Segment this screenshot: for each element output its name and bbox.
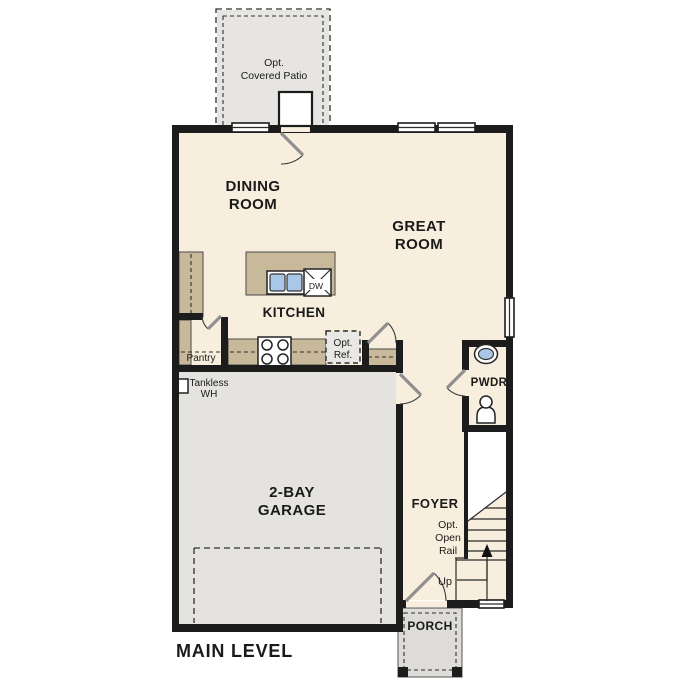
great-room-label-1: GREAT	[392, 218, 445, 235]
pwdr-label: PWDR	[471, 377, 508, 389]
foyer-label: FOYER	[412, 496, 459, 511]
window-dining	[232, 123, 269, 132]
cooktop	[258, 337, 291, 367]
wall-pantry-right	[221, 317, 228, 365]
main-level-title: MAIN LEVEL	[176, 641, 293, 661]
toilet	[477, 396, 495, 423]
patio-door-panel	[279, 92, 312, 126]
pantry-label: Pantry	[187, 353, 216, 364]
patio-label-2: Covered Patio	[241, 70, 308, 82]
wall-foyer-stairs	[464, 432, 468, 559]
kitchen-label: KITCHEN	[263, 305, 326, 320]
open-rail-label-3: Rail	[439, 545, 457, 557]
window-stairs-front	[479, 600, 504, 608]
floor-plan-drawing: Opt. Ref. DW	[0, 0, 687, 687]
burner	[262, 340, 272, 350]
powder-sink	[475, 345, 498, 364]
wall-pantry-top	[172, 313, 203, 320]
tankless-label-1: Tankless	[190, 378, 229, 389]
sink-basin-left	[270, 274, 285, 291]
dining-room-label-2: ROOM	[229, 196, 277, 213]
window-great-2	[438, 123, 475, 132]
dishwasher: DW	[304, 269, 331, 296]
dishwasher-label: DW	[309, 281, 323, 291]
island-sink	[267, 271, 305, 294]
dining-room-label-1: DINING	[226, 178, 281, 195]
wall-pwdr-bottom	[462, 425, 513, 432]
wall-closet-left	[362, 340, 369, 372]
patio-label-1: Opt.	[264, 57, 284, 69]
porch-post-right	[452, 667, 462, 677]
window-great-right	[505, 298, 514, 337]
burner	[278, 354, 288, 364]
great-room-label-2: ROOM	[395, 236, 443, 253]
wall-left	[172, 125, 179, 632]
opt-ref-label-1: Opt.	[334, 338, 353, 349]
wall-pwdr-left-upper	[462, 340, 469, 370]
open-rail-label-1: Opt.	[438, 519, 458, 531]
garage-label-1: 2-BAY	[269, 484, 315, 501]
burner	[262, 354, 272, 364]
porch-label: PORCH	[407, 619, 452, 633]
porch-post-left	[398, 667, 408, 677]
open-rail-label-2: Open	[435, 532, 461, 544]
wall-closet-right	[396, 340, 403, 373]
wall-right	[506, 125, 513, 608]
front-door-opening	[406, 601, 447, 607]
floor-plan-page: Opt. Ref. DW	[0, 0, 687, 687]
window-great-1	[398, 123, 435, 132]
garage-label-2: GARAGE	[258, 502, 326, 519]
up-label: Up	[438, 576, 452, 588]
wall-garage-right	[396, 404, 403, 632]
burner	[278, 340, 288, 350]
sink-bowl	[479, 349, 494, 360]
optional-refrigerator: Opt. Ref.	[326, 331, 360, 363]
wall-garage-front	[172, 624, 403, 632]
opt-ref-label-2: Ref.	[334, 350, 352, 361]
sink-basin-right	[287, 274, 302, 291]
tankless-label-2: WH	[201, 389, 218, 400]
